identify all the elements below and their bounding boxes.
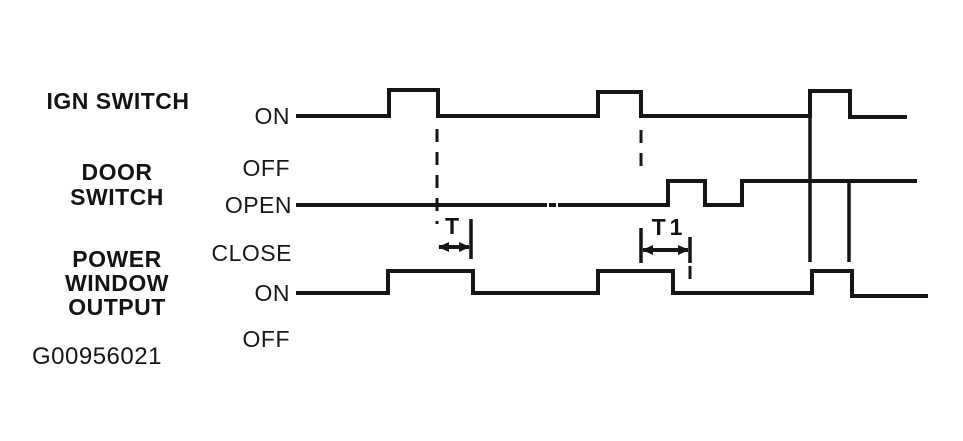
power-window-timing-diagram: IGN SWITCH DOOR SWITCH POWER WINDOW OUTP… [0,0,963,441]
door-switch-wave-seg3 [560,181,915,205]
row-label-power-window-output: POWER WINDOW OUTPUT [42,247,192,319]
power-window-output-wave [298,271,926,296]
row-label-ign-switch: IGN SWITCH [28,89,208,114]
door-open-label: OPEN [180,193,292,217]
ign-on-label: ON [190,103,290,129]
ign-switch-wave [298,90,905,117]
figure-id: G00956021 [32,343,162,371]
waveform-canvas [0,0,963,441]
t-interval-label: T [438,213,466,240]
pw-state-labels: ON OFF [190,259,290,374]
row-label-door-switch: DOOR SWITCH [42,160,192,210]
pw-off-label: OFF [190,328,290,351]
measure-t-arrowhead-left [438,242,449,252]
measure-t-arrowhead-right [459,242,470,252]
measure-t1-arrowhead-right [678,245,689,255]
pw-on-label: ON [190,282,290,305]
measure-t1-arrowhead-left [642,245,653,255]
t1-interval-label: T1 [646,214,692,241]
